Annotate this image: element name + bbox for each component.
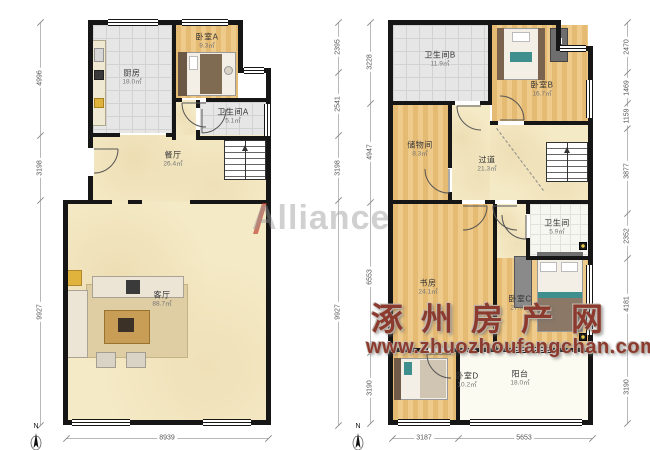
- wall: [91, 133, 120, 137]
- side-table: [66, 270, 82, 286]
- appliance: [94, 98, 104, 108]
- bed-rail: [538, 28, 545, 80]
- dim-label: 1469: [624, 78, 631, 98]
- window: [470, 419, 582, 426]
- speaker: [579, 242, 587, 250]
- dim-label: 2395: [335, 37, 342, 57]
- stair-up-arrow: [564, 144, 570, 153]
- watermark-site-name: 涿州房产网: [371, 303, 621, 335]
- wall: [88, 20, 93, 204]
- table-decor: [118, 318, 134, 332]
- tv-console: [126, 280, 140, 294]
- dim-label: 3187: [414, 435, 434, 442]
- door-arc: [93, 148, 119, 174]
- stove: [94, 70, 104, 80]
- wall: [66, 200, 112, 204]
- watermark-alliance: Alliance: [252, 201, 390, 235]
- door-arc: [424, 168, 450, 194]
- door-arc: [456, 105, 482, 131]
- compass-n-label: N: [350, 423, 366, 430]
- window: [244, 67, 264, 74]
- wall: [524, 121, 590, 125]
- wall: [390, 101, 455, 105]
- dim-label: 3228: [367, 52, 374, 72]
- door-arc: [501, 214, 527, 240]
- dim-label: 9927: [37, 302, 44, 322]
- dim-label: 3877: [624, 161, 631, 181]
- ottoman: [96, 352, 116, 368]
- wall: [390, 200, 462, 204]
- wall: [166, 133, 172, 137]
- compass: N: [28, 423, 44, 450]
- room-label-bathroom: 卫生间 5.9㎡: [544, 219, 570, 238]
- bed-headboard: [178, 52, 187, 96]
- dim-label: 6553: [367, 267, 374, 287]
- dim-label: 3198: [37, 158, 44, 178]
- bed-decor: [224, 66, 233, 75]
- window: [203, 419, 251, 426]
- dim-label: 1159: [624, 106, 631, 125]
- dim-tick: [367, 420, 374, 427]
- room-label-living: 客厅 88.7㎡: [152, 291, 171, 310]
- sink: [94, 48, 104, 62]
- room-label-kitchen: 厨房 18.0㎡: [122, 69, 141, 88]
- dim-label: 4181: [624, 294, 631, 314]
- door-arc: [499, 95, 525, 121]
- compass-n-label: N: [28, 423, 44, 430]
- wall: [172, 22, 176, 140]
- wall: [448, 105, 452, 168]
- door-arc: [462, 205, 488, 231]
- room-label-hallway: 过道 21.3㎡: [477, 156, 496, 175]
- dim-label: 3198: [335, 158, 342, 178]
- wall: [196, 136, 270, 140]
- wall: [206, 98, 268, 102]
- stairs: [546, 142, 588, 182]
- dim-label: 3190: [624, 377, 631, 397]
- room-label-bedroom-b: 卧室B 16.7㎡: [531, 81, 554, 100]
- wall: [388, 20, 561, 25]
- wall: [526, 256, 590, 260]
- ottoman: [126, 352, 146, 368]
- window: [108, 19, 158, 26]
- wall: [63, 200, 68, 425]
- pillow: [540, 262, 557, 272]
- dim-label: 5653: [514, 435, 534, 442]
- dim-label: 4947: [367, 142, 374, 162]
- wall: [488, 22, 492, 105]
- dim-label: 8939: [157, 435, 177, 442]
- dim-tick: [265, 435, 272, 442]
- room-label-dining: 餐厅 26.4㎡: [163, 151, 182, 170]
- room-label-bedroom-d: 卧室D 10.2㎡: [455, 372, 478, 391]
- room-label-bedroom-a: 卧室A 9.3㎡: [196, 33, 219, 52]
- pillow: [561, 262, 578, 272]
- pillow: [189, 56, 198, 70]
- dim-label: 4996: [37, 68, 44, 88]
- stair-up-arrow: [242, 142, 248, 151]
- dim-tick: [624, 420, 631, 427]
- compass: N: [350, 423, 366, 450]
- sofa: [66, 290, 88, 358]
- dim-label: 2470: [624, 37, 631, 57]
- window: [264, 104, 271, 136]
- window: [586, 80, 593, 118]
- bed-headboard: [394, 358, 401, 400]
- pillow: [512, 32, 530, 42]
- dim-label: 2352: [624, 226, 631, 246]
- pillow: [404, 362, 412, 375]
- bed-blanket: [200, 54, 222, 94]
- bed-throw: [510, 52, 532, 62]
- dim-tick: [589, 435, 596, 442]
- dim-tick: [335, 422, 342, 429]
- window: [398, 419, 450, 426]
- window: [560, 45, 586, 52]
- bed-rail: [497, 28, 504, 80]
- compass-needle-icon: [28, 431, 44, 450]
- wall: [526, 204, 530, 214]
- floorplan-canvas: 厨房 18.0㎡ 卧室A 9.3㎡ 卫生间A 5.1㎡ 餐厅 26.4㎡ 客厅 …: [0, 0, 650, 450]
- wall: [490, 121, 498, 125]
- compass-needle-icon: [350, 431, 366, 450]
- wall: [128, 200, 142, 204]
- dim-label: 3190: [367, 378, 374, 398]
- room-label-storage: 储物间 8.3㎡: [407, 141, 433, 160]
- stairs: [224, 140, 266, 180]
- window: [182, 19, 228, 26]
- dim-label: 9927: [335, 302, 342, 322]
- dim-label: 2541: [335, 94, 342, 114]
- room-label-balcony: 阳台 18.0㎡: [510, 370, 529, 389]
- room-label-bathroom-a: 卫生间A 5.1㎡: [217, 108, 248, 127]
- room-label-study: 书房 24.1㎡: [418, 279, 437, 298]
- wall: [238, 20, 243, 72]
- room-label-bathroom-b: 卫生间B 11.9㎡: [424, 51, 455, 70]
- watermark-site-url: www.zhuozhoufangchan.com: [366, 336, 650, 358]
- window: [72, 419, 130, 426]
